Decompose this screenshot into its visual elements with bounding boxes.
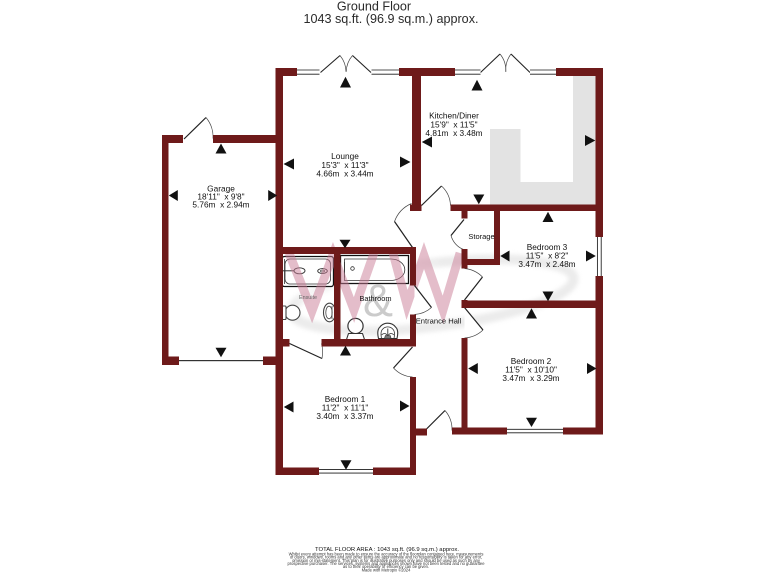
svg-text:3.47m x 3.29m: 3.47m x 3.29m bbox=[502, 373, 559, 383]
svg-text:Entrance Hall: Entrance Hall bbox=[416, 317, 462, 326]
svg-text:3.40m x 3.37m: 3.40m x 3.37m bbox=[316, 411, 373, 421]
svg-text:Made with Metropix ©2024: Made with Metropix ©2024 bbox=[362, 567, 411, 572]
svg-text:4.66m x 3.44m: 4.66m x 3.44m bbox=[316, 169, 373, 179]
svg-text:3.47m x 2.48m: 3.47m x 2.48m bbox=[518, 259, 575, 269]
svg-text:Bathroom: Bathroom bbox=[359, 294, 391, 303]
svg-text:1043 sq.ft. (96.9 sq.m.) appro: 1043 sq.ft. (96.9 sq.m.) approx. bbox=[303, 12, 478, 26]
svg-text:5.76m x 2.94m: 5.76m x 2.94m bbox=[192, 200, 249, 210]
svg-text:Storage: Storage bbox=[468, 232, 494, 241]
svg-text:4.81m x 3.48m: 4.81m x 3.48m bbox=[425, 128, 482, 138]
svg-text:Ensuite: Ensuite bbox=[299, 295, 317, 301]
